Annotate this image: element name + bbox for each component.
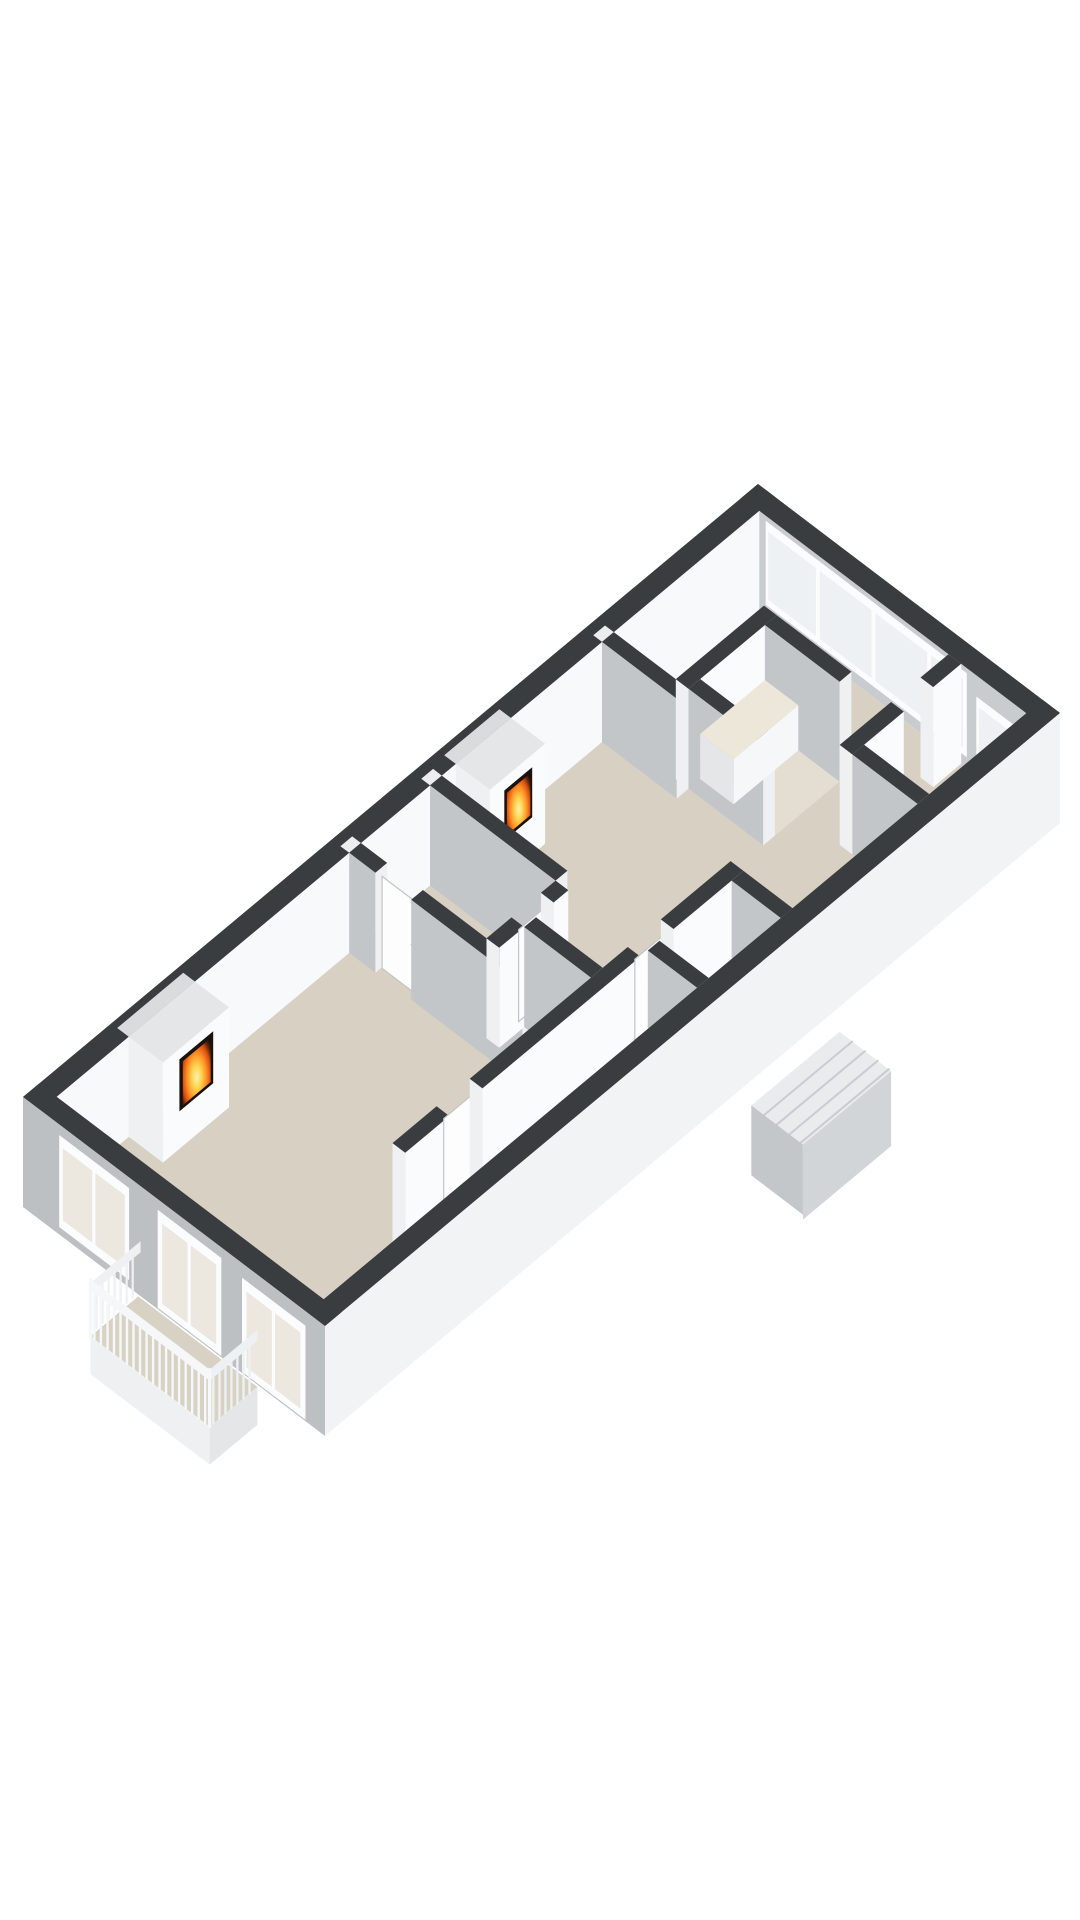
floorplan-3d-render: [0, 0, 1080, 1920]
wall-nook-nw-end: [676, 679, 689, 789]
floorplan-page: [0, 0, 1080, 1920]
wall-bath-se-left-end: [487, 938, 500, 1048]
wall-h-left-end: [840, 745, 853, 855]
wall-a-upper-face: [349, 853, 375, 973]
floorplan-scene: [23, 484, 1060, 1465]
wall-h-right-end: [921, 678, 934, 788]
